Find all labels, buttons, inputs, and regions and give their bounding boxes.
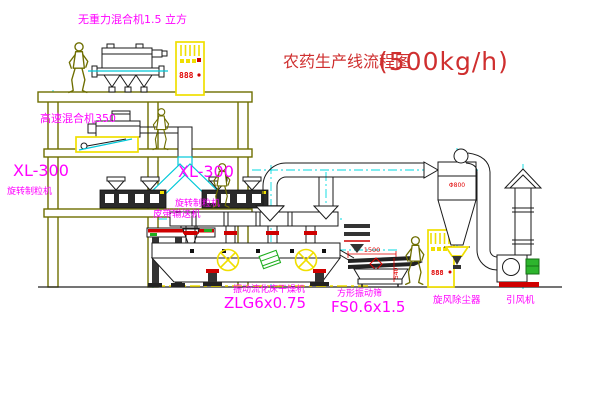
label-sieve-model: FS0.6x1.5 bbox=[331, 298, 405, 316]
sieve-length-dim: 1500 bbox=[364, 246, 381, 254]
control-cabinet-1: 888 bbox=[176, 42, 204, 95]
process-flow-diagram: 888 bbox=[0, 0, 600, 403]
label-granulator-name-left: 旋转制粒机 bbox=[7, 185, 52, 197]
dryer-discharge bbox=[340, 224, 370, 262]
worker-1 bbox=[69, 43, 88, 93]
label-belt-conveyor: 皮带输送机 bbox=[153, 208, 201, 220]
label-granulator-model-right: XL-300 bbox=[178, 162, 234, 181]
label-cyclone: 旋风除尘器 bbox=[433, 294, 481, 306]
label-granulator-model-left: XL-300 bbox=[13, 161, 69, 180]
indicator-light bbox=[197, 73, 200, 76]
stack-arrow-cap bbox=[505, 169, 541, 188]
fan-base bbox=[499, 282, 539, 287]
label-high-speed-mixer: 高速混合机350 bbox=[40, 111, 116, 125]
label-gravity-mixer: 无重力混合机1.5 立方 bbox=[78, 12, 187, 26]
sieve-height-dim: 540 bbox=[393, 267, 400, 279]
pipe-arrow bbox=[424, 162, 438, 178]
diagram-capacity: (500kg/h) bbox=[378, 47, 509, 76]
cabinet1-display: 888 bbox=[179, 71, 194, 80]
gravity-free-mixer bbox=[88, 44, 168, 92]
granulator-left bbox=[100, 177, 166, 208]
induced-draft-fan bbox=[497, 169, 541, 287]
indicator-light bbox=[449, 271, 452, 274]
flowchart-canvas: 888 bbox=[0, 0, 600, 403]
label-granulator-name-right: 旋转制粒机 bbox=[175, 197, 220, 209]
worker-4 bbox=[406, 237, 424, 285]
label-fan: 引风机 bbox=[506, 294, 535, 306]
cabinet2-display: 888 bbox=[431, 269, 444, 277]
label-dryer-model: ZLG6x0.75 bbox=[224, 294, 306, 312]
cyclone-diameter-dim: Φ800 bbox=[449, 182, 465, 189]
